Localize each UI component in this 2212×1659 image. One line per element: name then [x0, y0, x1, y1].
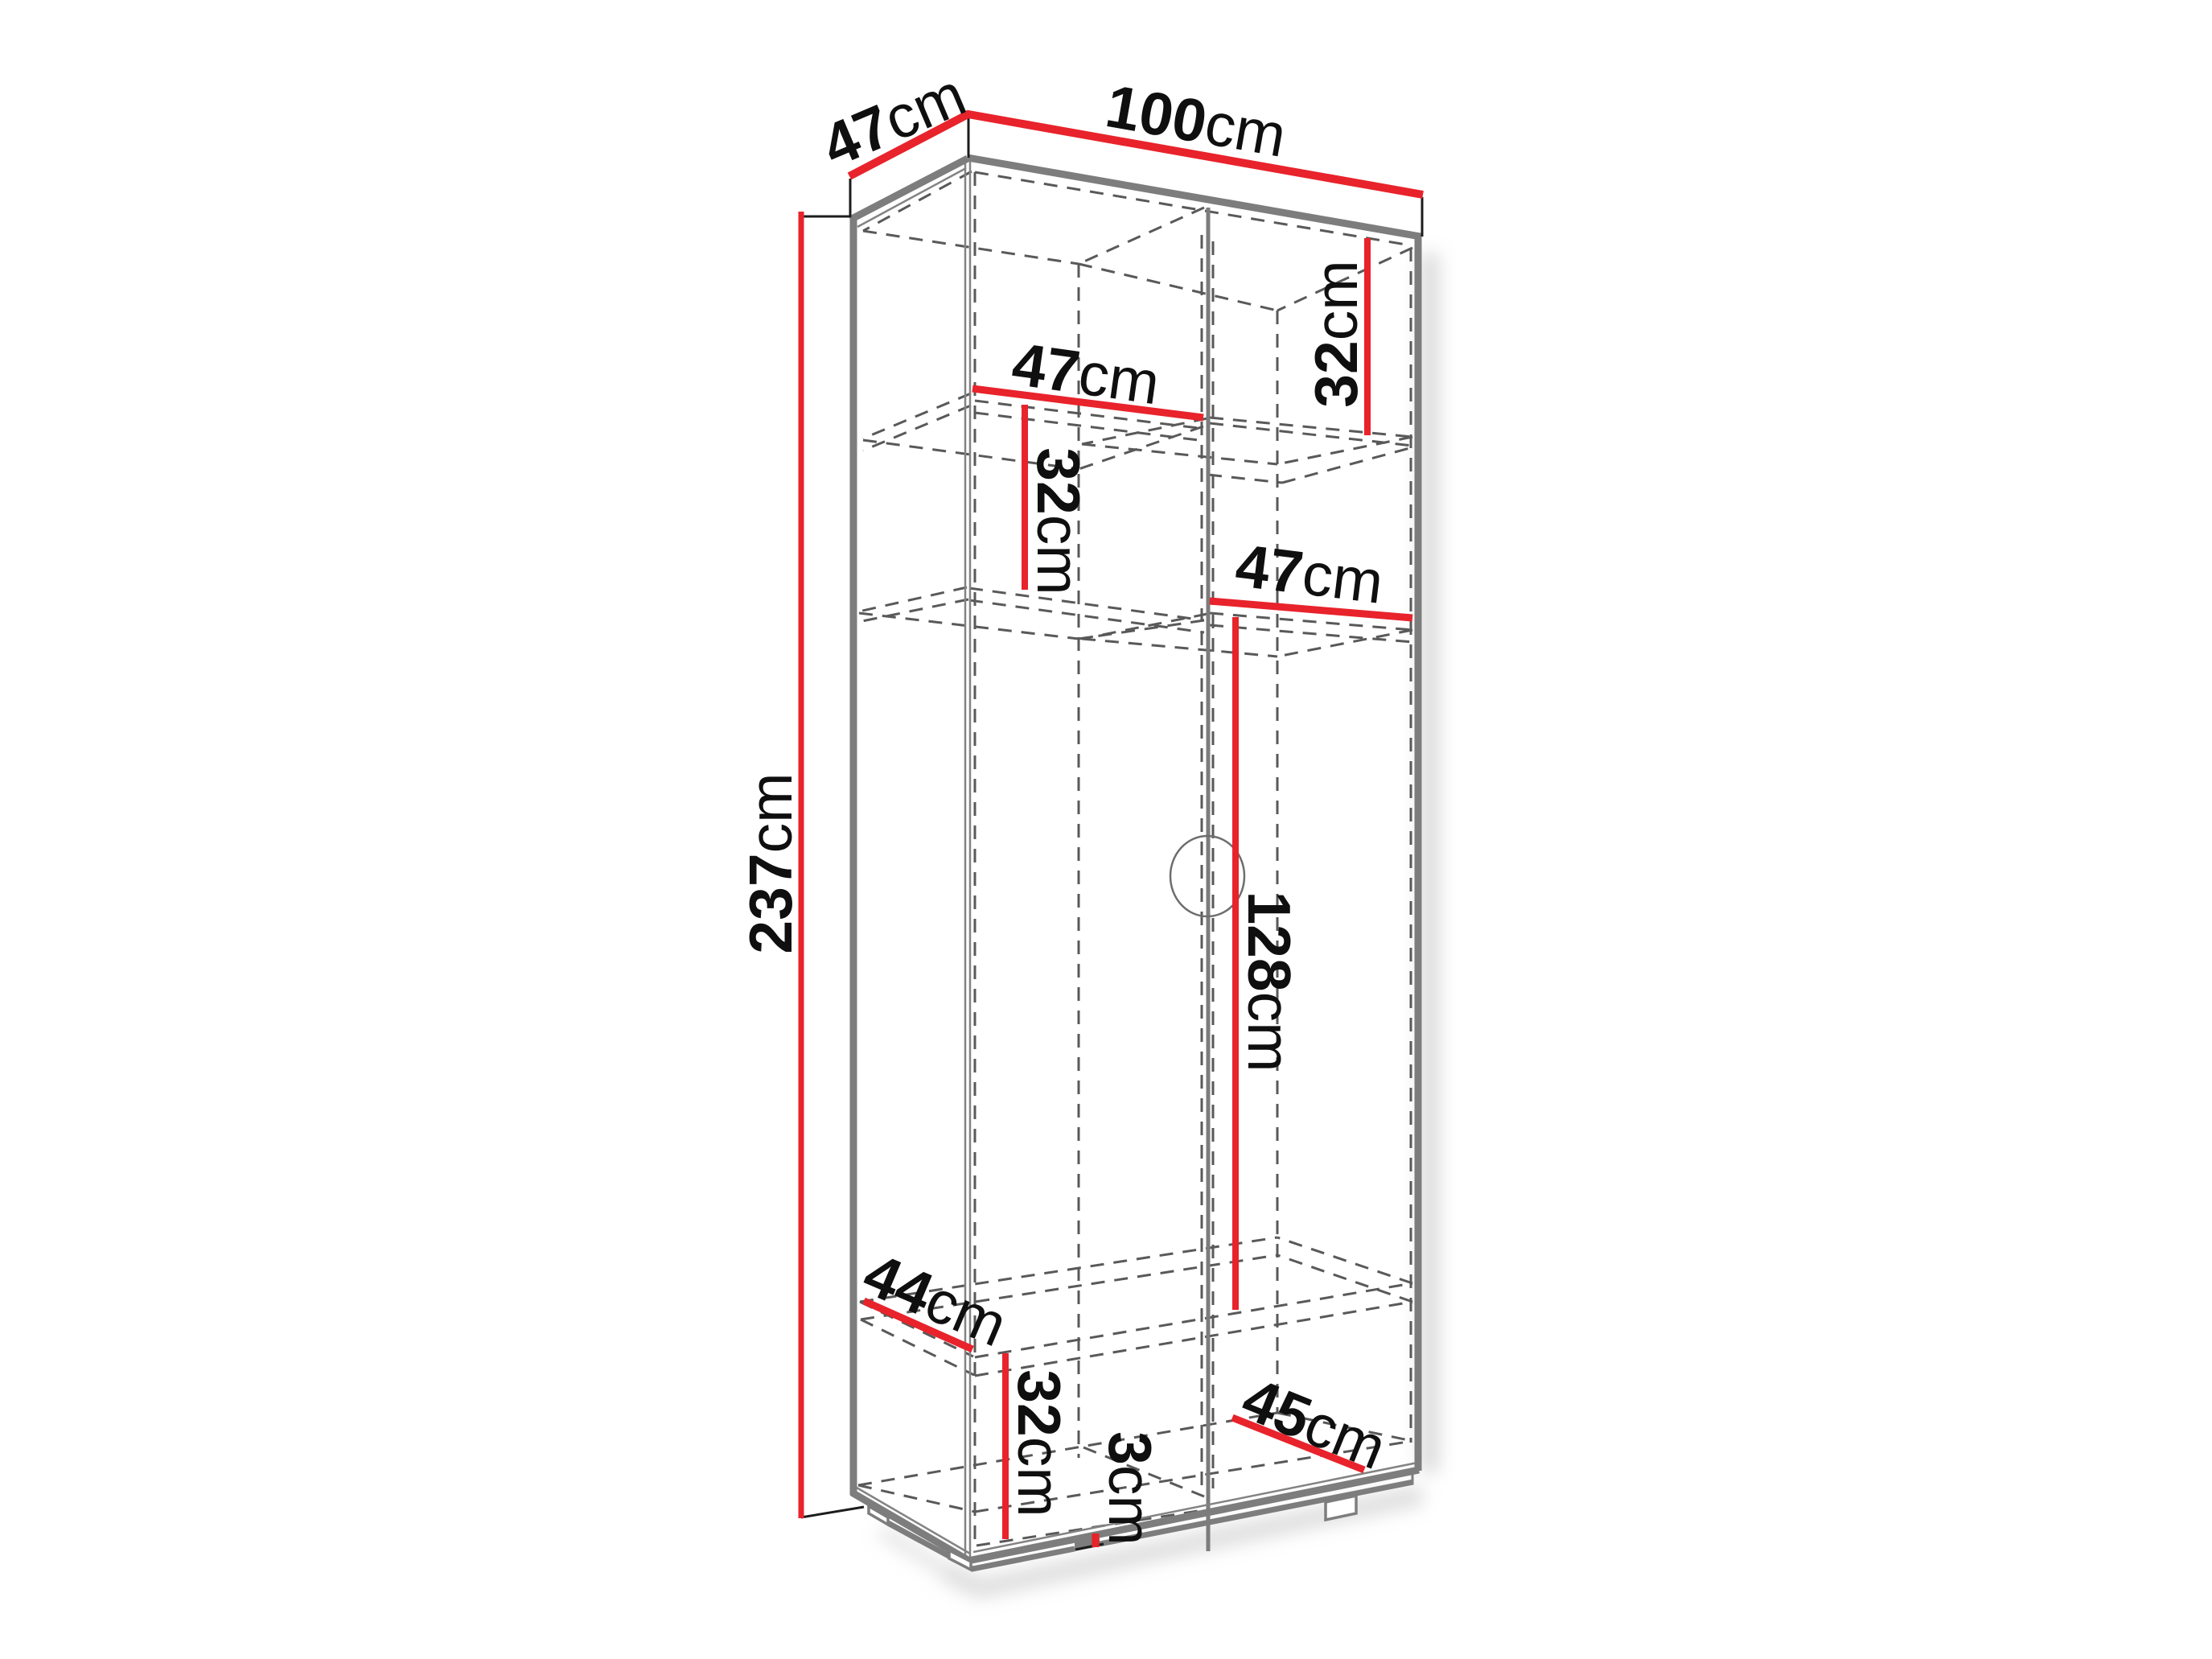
svg-text:3cm: 3cm	[1096, 1431, 1164, 1546]
svg-text:128cm: 128cm	[1236, 891, 1303, 1072]
svg-text:32cm: 32cm	[1025, 447, 1092, 595]
svg-text:32cm: 32cm	[1302, 260, 1370, 407]
svg-text:100cm: 100cm	[1101, 72, 1291, 170]
svg-text:47cm: 47cm	[812, 60, 975, 180]
svg-text:44cm: 44cm	[854, 1240, 1017, 1360]
svg-text:47cm: 47cm	[1008, 330, 1163, 418]
svg-text:32cm: 32cm	[1005, 1369, 1073, 1517]
svg-text:237cm: 237cm	[737, 772, 804, 953]
svg-text:45cm: 45cm	[1233, 1365, 1396, 1483]
